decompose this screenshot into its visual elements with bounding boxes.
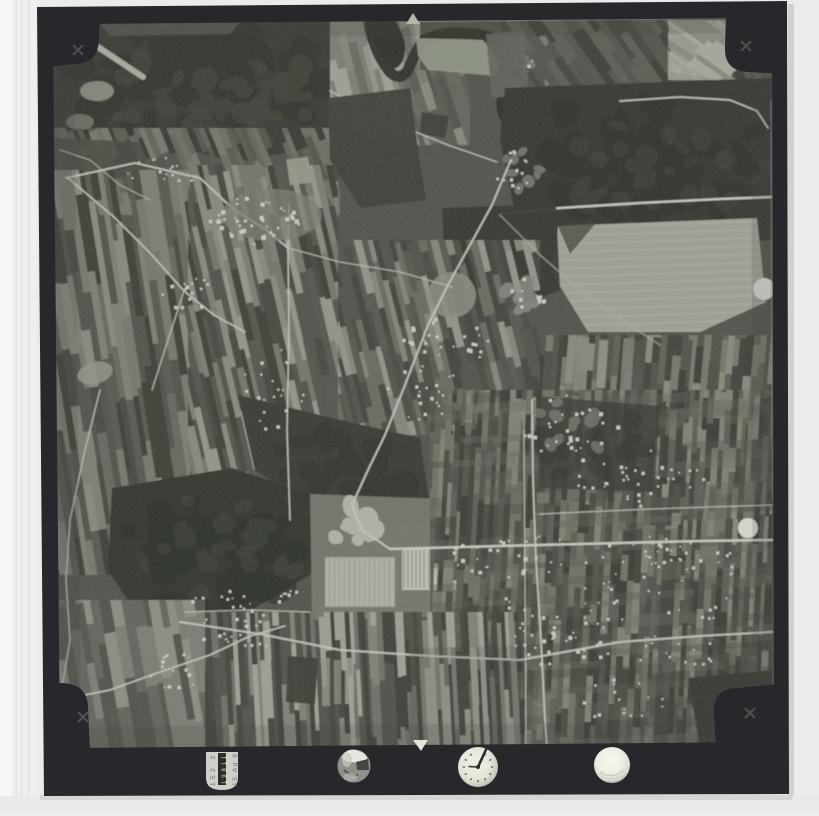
svg-text:15 Ag 9: 15 Ag 9 (232, 754, 239, 786)
